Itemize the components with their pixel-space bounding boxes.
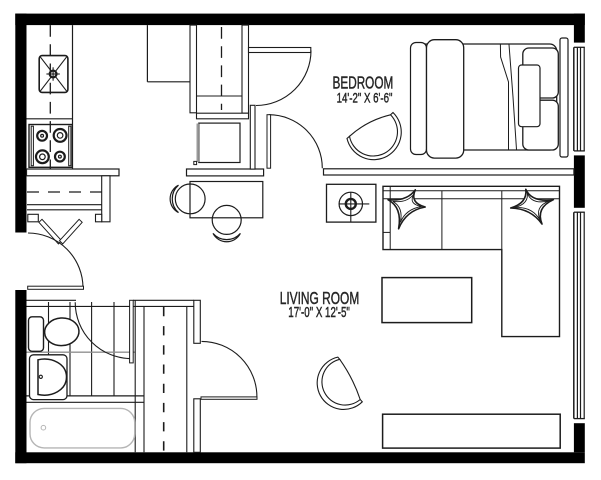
svg-text:BEDROOM: BEDROOM [333, 72, 394, 92]
svg-text:17'-0" X 12'-5": 17'-0" X 12'-5" [288, 305, 350, 321]
svg-text:14'-2" X 6'-6": 14'-2" X 6'-6" [337, 90, 393, 106]
